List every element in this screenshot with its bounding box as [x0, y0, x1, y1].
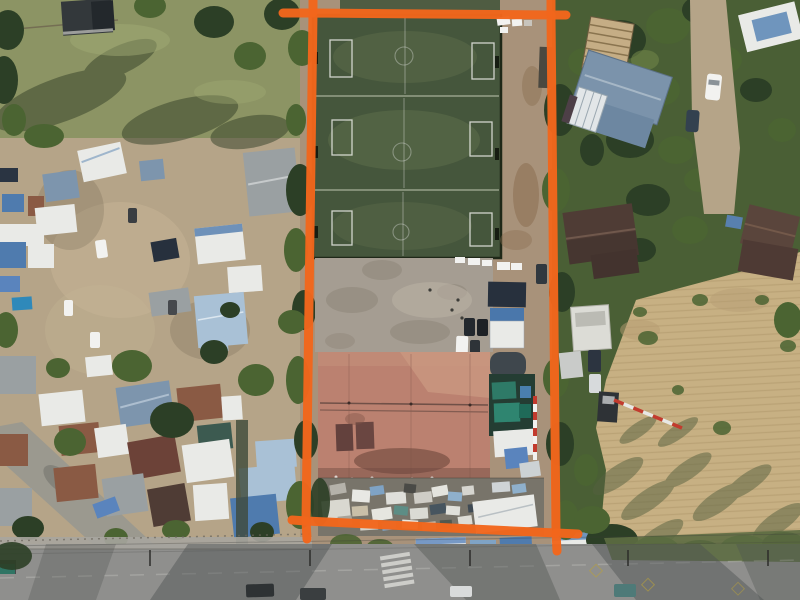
clay-courts [318, 352, 490, 482]
vehicle [512, 19, 522, 27]
house-roof [0, 434, 28, 466]
white-car [705, 73, 723, 100]
alley [236, 420, 248, 544]
car [90, 332, 100, 348]
house-roof [0, 242, 26, 268]
house-roof [193, 483, 229, 521]
house-roof [53, 464, 98, 502]
white-tent [571, 305, 612, 352]
car [464, 318, 475, 336]
car [128, 208, 137, 223]
bus [614, 584, 636, 597]
house-roof [147, 483, 191, 527]
house-roof [38, 390, 85, 426]
aerial-photo [0, 0, 800, 600]
court-mat [356, 422, 375, 450]
shed [559, 351, 584, 379]
striped-pole [533, 396, 537, 460]
warehouse-roof [488, 282, 526, 308]
house-roof [227, 265, 263, 293]
swimming-pool [12, 296, 33, 310]
building-roof [490, 321, 524, 348]
house-roof [0, 276, 20, 292]
house-roof [221, 395, 243, 420]
soccer-fields [313, 15, 501, 258]
car [536, 264, 547, 284]
car [450, 586, 472, 597]
shed [61, 0, 115, 36]
house-roof [28, 244, 54, 268]
house-roof [94, 424, 130, 458]
aerial-photo-canvas [0, 0, 800, 600]
house-roof [139, 159, 165, 181]
court-mat [336, 424, 354, 452]
house-roof [42, 170, 80, 202]
house-roof [2, 194, 24, 212]
car [588, 350, 601, 372]
car [300, 588, 326, 600]
car [168, 300, 177, 315]
car [589, 374, 601, 393]
car [0, 168, 18, 182]
house-roof [85, 355, 113, 378]
car [64, 300, 73, 316]
house-roof [0, 356, 36, 394]
car [477, 319, 488, 336]
house-roof [182, 439, 235, 483]
tarp [492, 381, 517, 399]
building-roof [490, 308, 524, 321]
car [246, 584, 274, 598]
car [685, 110, 700, 133]
tarp [494, 403, 521, 423]
road [0, 530, 800, 600]
